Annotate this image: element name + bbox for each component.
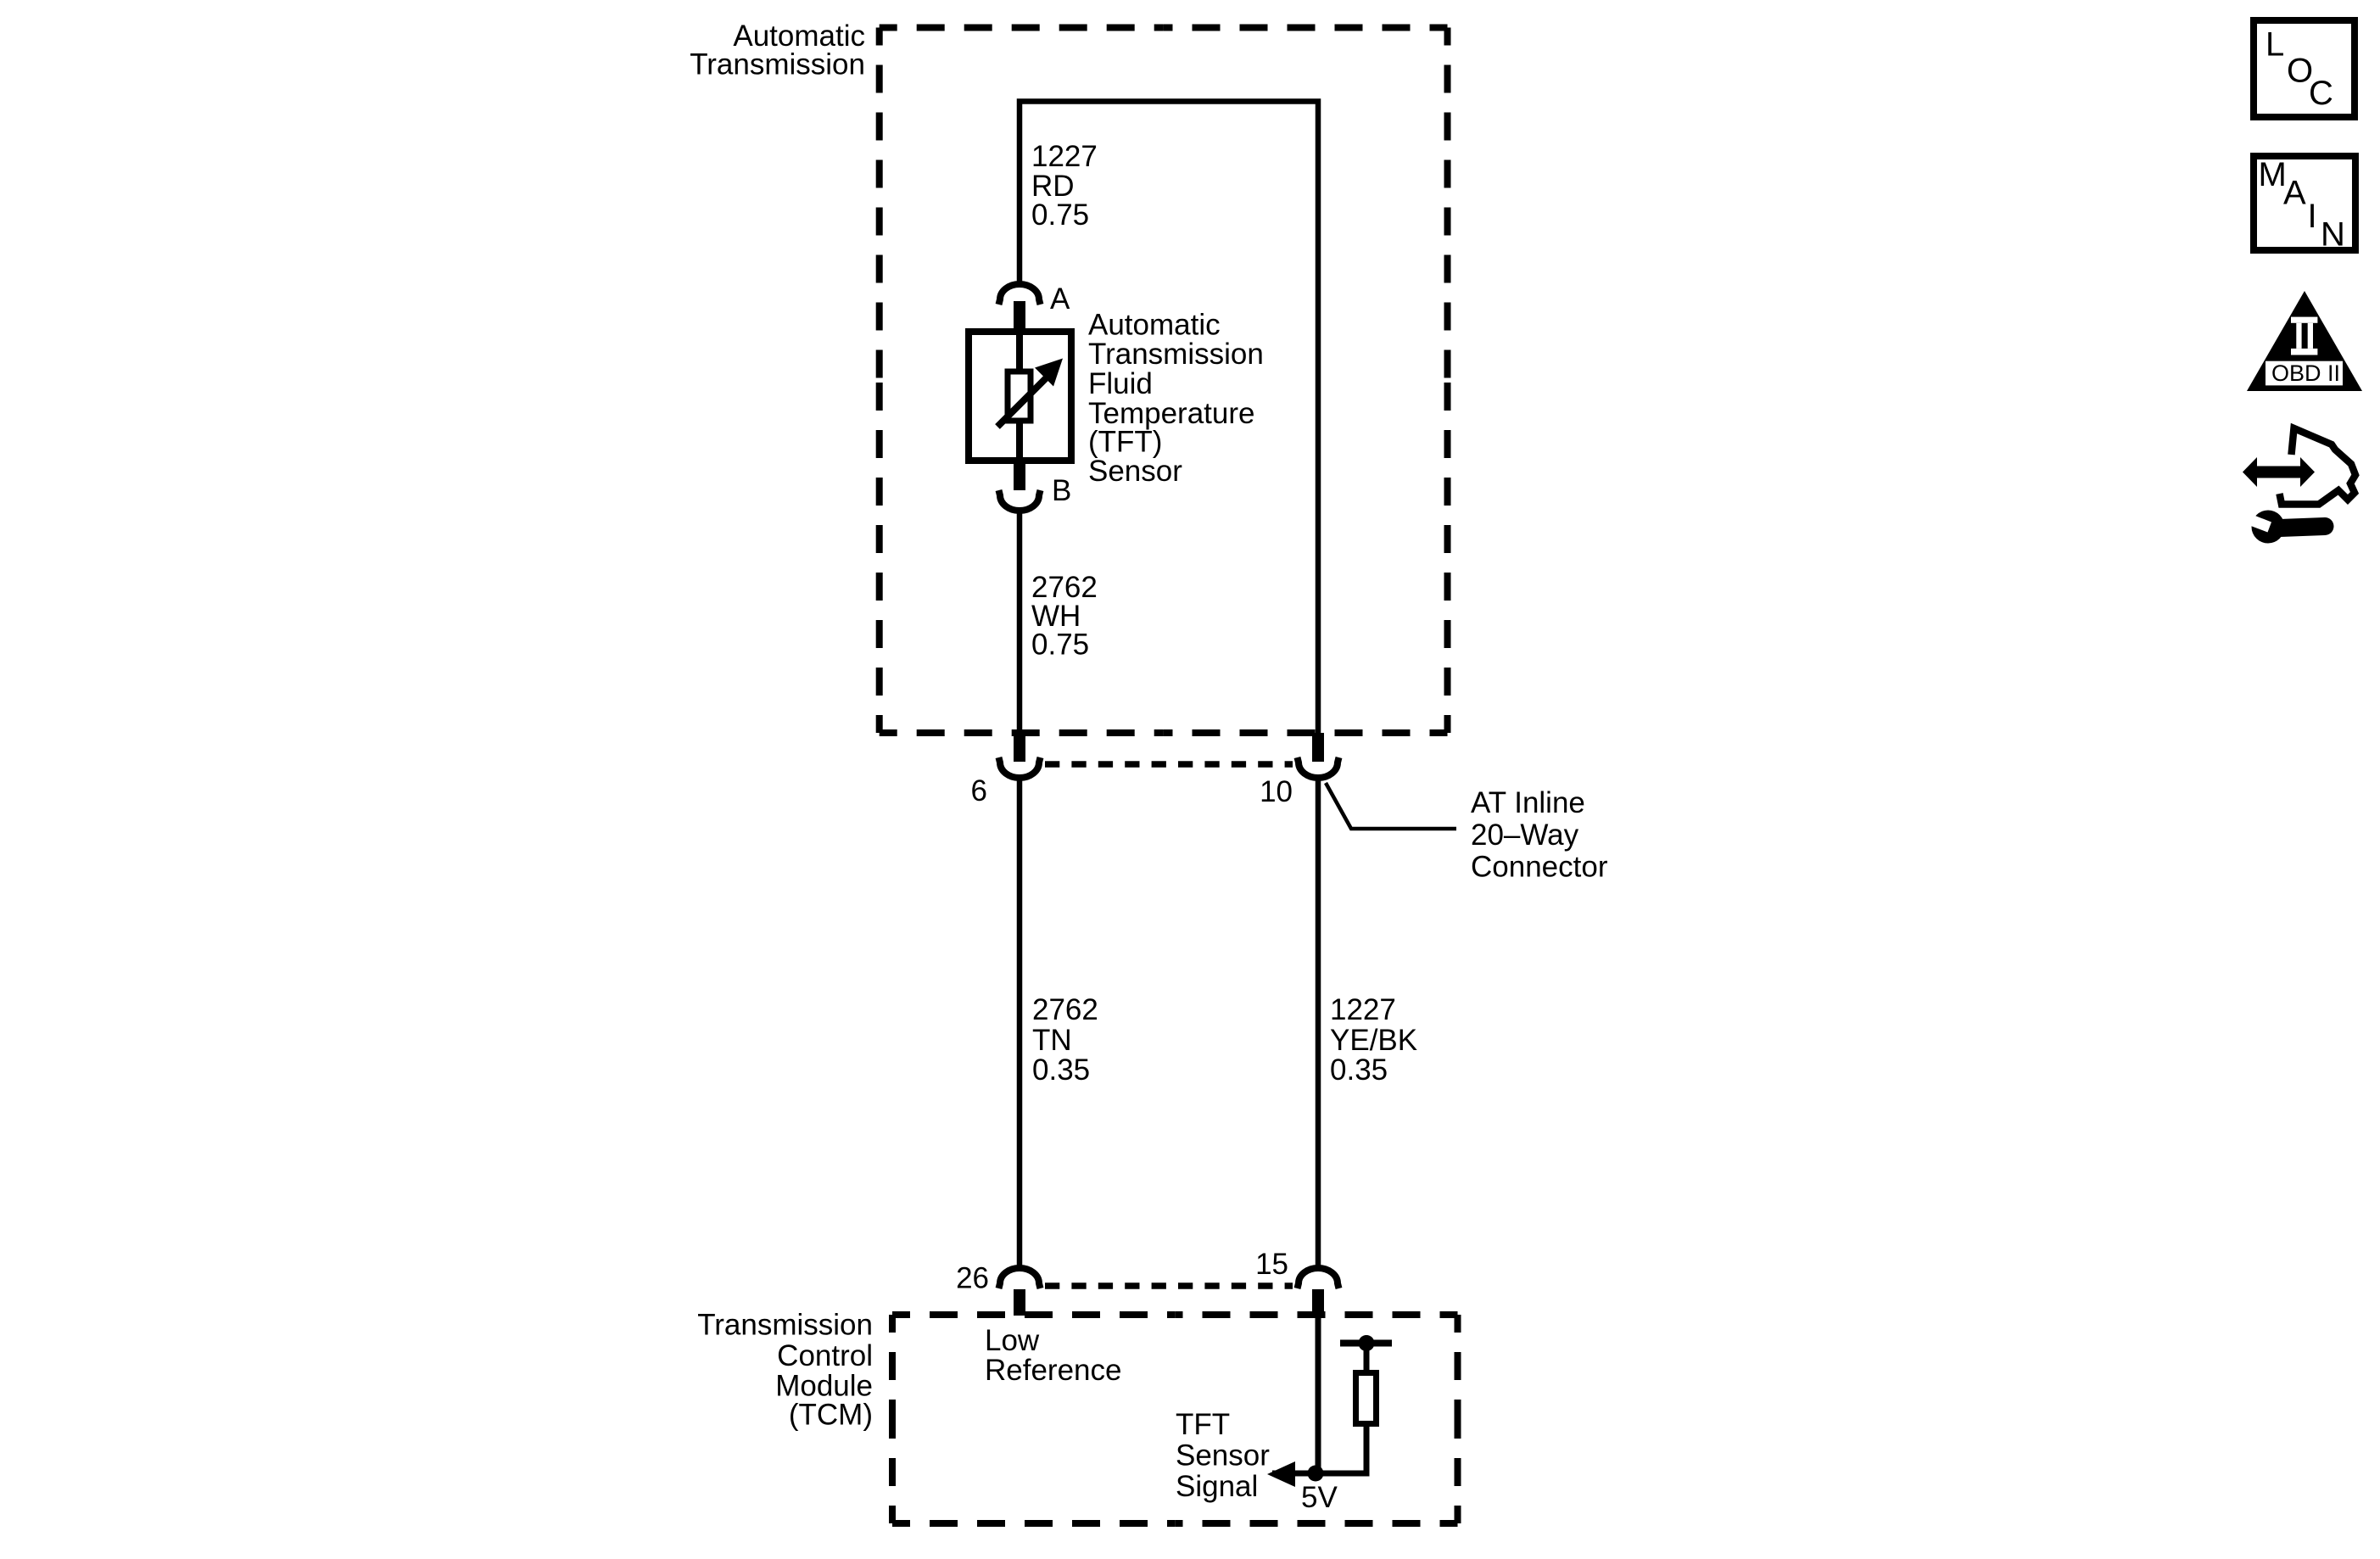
svg-text:0.35: 0.35 bbox=[1330, 1053, 1388, 1087]
svg-text:Sensor: Sensor bbox=[1088, 455, 1182, 488]
svg-text:26: 26 bbox=[956, 1262, 989, 1295]
svg-text:6: 6 bbox=[971, 774, 987, 807]
svg-text:L: L bbox=[2265, 26, 2284, 64]
svg-text:I: I bbox=[2308, 198, 2317, 235]
svg-text:TFT: TFT bbox=[1176, 1408, 1230, 1441]
svg-text:Low: Low bbox=[985, 1324, 1040, 1357]
svg-text:5V: 5V bbox=[1301, 1481, 1338, 1514]
svg-text:(TFT): (TFT) bbox=[1088, 425, 1162, 458]
svg-text:OBD II: OBD II bbox=[2271, 360, 2340, 386]
svg-text:A: A bbox=[2283, 175, 2306, 212]
svg-text:2762: 2762 bbox=[1032, 993, 1098, 1026]
svg-text:(TCM): (TCM) bbox=[789, 1398, 873, 1431]
svg-text:Transmission: Transmission bbox=[690, 48, 865, 81]
svg-text:Automatic: Automatic bbox=[1088, 308, 1221, 341]
svg-text:10: 10 bbox=[1260, 775, 1293, 808]
svg-text:M: M bbox=[2259, 156, 2287, 193]
svg-text:TN: TN bbox=[1032, 1024, 1072, 1057]
svg-text:15: 15 bbox=[1255, 1248, 1288, 1281]
svg-text:0.75: 0.75 bbox=[1031, 629, 1089, 662]
svg-text:Connector: Connector bbox=[1471, 851, 1608, 884]
svg-text:Control: Control bbox=[777, 1339, 873, 1372]
svg-text:1227: 1227 bbox=[1031, 140, 1098, 173]
svg-text:Signal: Signal bbox=[1176, 1470, 1258, 1503]
svg-text:A: A bbox=[1050, 282, 1070, 316]
svg-text:AT Inline: AT Inline bbox=[1471, 786, 1585, 819]
svg-text:N: N bbox=[2321, 216, 2345, 254]
svg-text:20–Way: 20–Way bbox=[1471, 819, 1579, 852]
svg-text:Fluid: Fluid bbox=[1088, 367, 1153, 400]
svg-text:0.35: 0.35 bbox=[1032, 1053, 1090, 1087]
svg-text:Transmission: Transmission bbox=[1088, 338, 1264, 371]
svg-text:Sensor: Sensor bbox=[1176, 1439, 1270, 1472]
svg-text:C: C bbox=[2309, 75, 2333, 112]
svg-text:YE/BK: YE/BK bbox=[1330, 1024, 1417, 1057]
svg-text:1227: 1227 bbox=[1330, 993, 1396, 1026]
svg-text:Reference: Reference bbox=[985, 1354, 1121, 1387]
svg-text:0.75: 0.75 bbox=[1031, 198, 1089, 232]
svg-text:Transmission: Transmission bbox=[697, 1308, 873, 1341]
svg-text:B: B bbox=[1052, 474, 1071, 507]
